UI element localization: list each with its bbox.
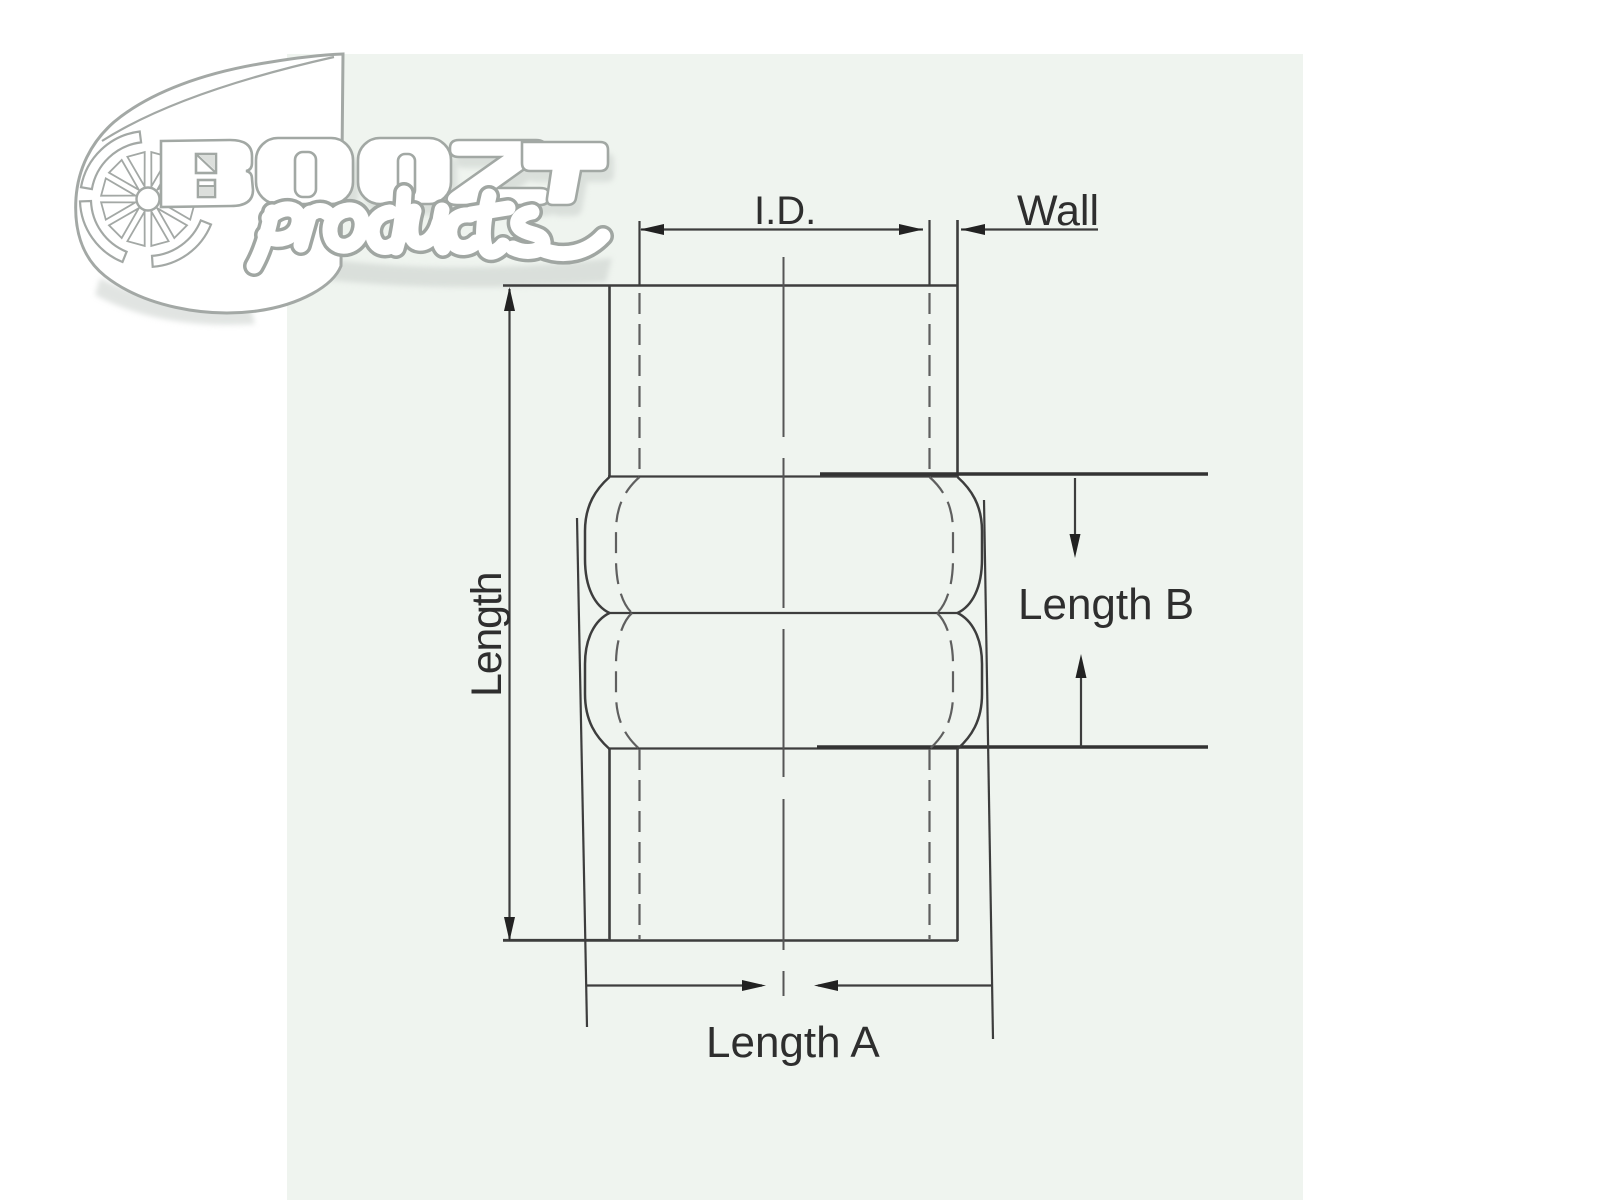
svg-text:Wall: Wall xyxy=(1017,187,1099,235)
svg-text:Length B: Length B xyxy=(1018,580,1194,629)
svg-text:Length: Length xyxy=(463,573,511,697)
svg-text:Length A: Length A xyxy=(706,1018,880,1067)
svg-text:I.D.: I.D. xyxy=(754,189,816,233)
